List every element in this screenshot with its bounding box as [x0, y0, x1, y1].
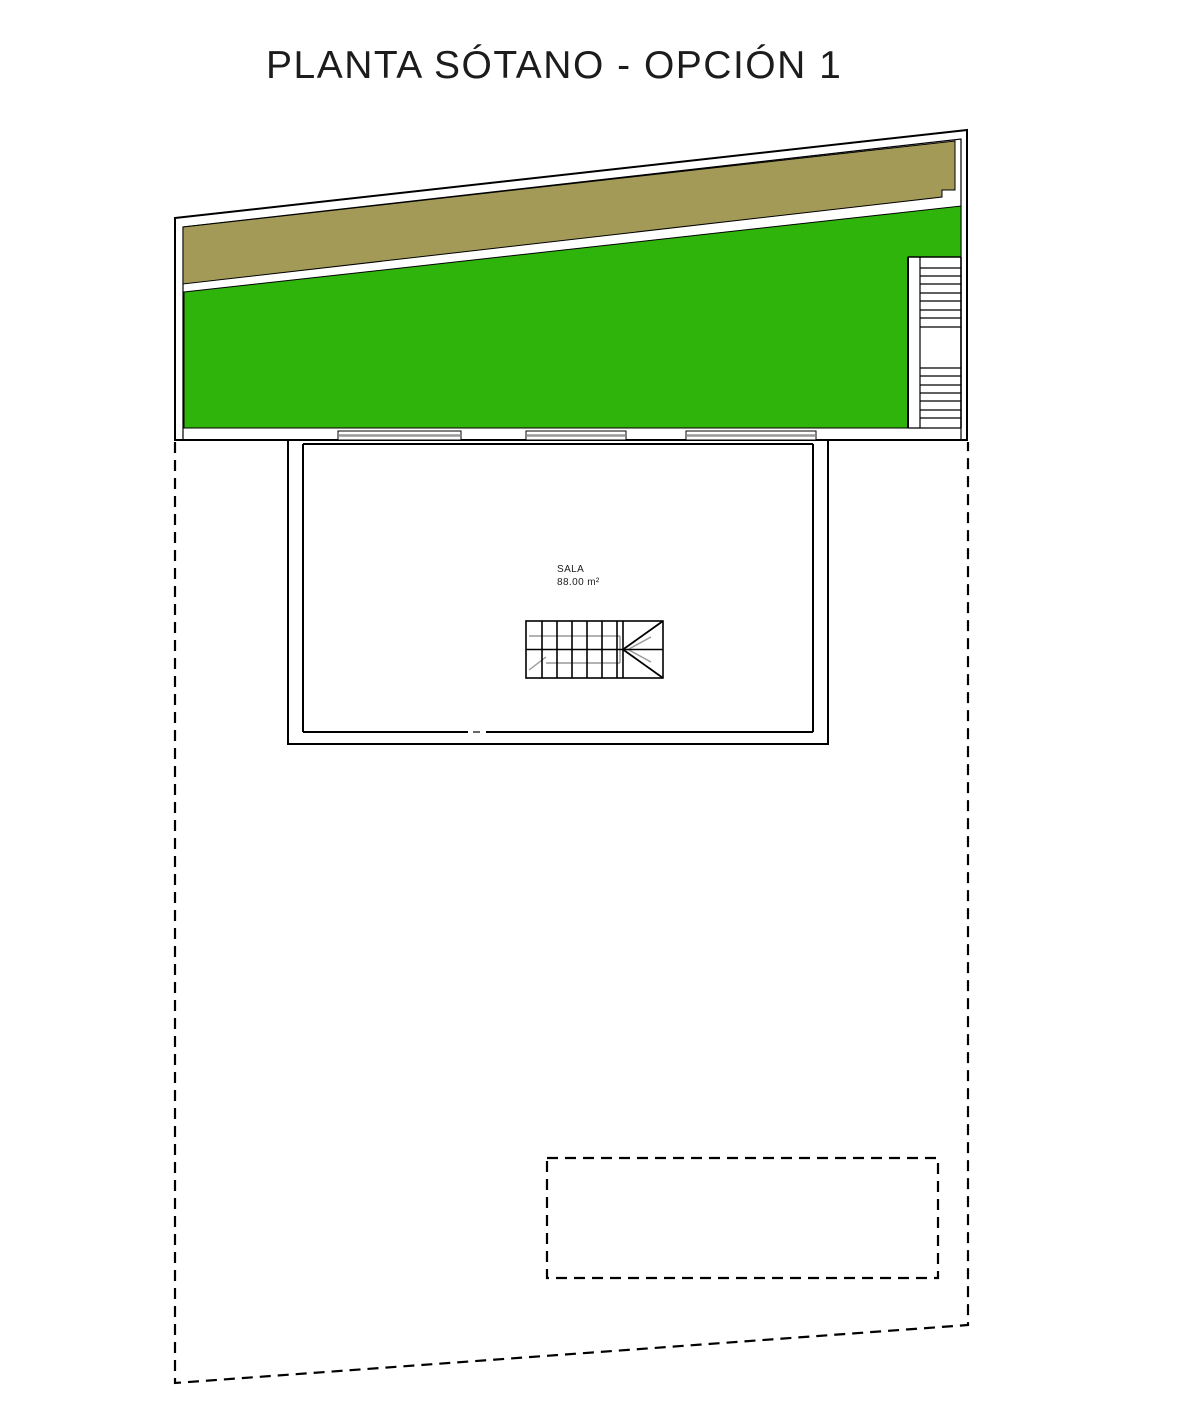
sala-room: SALA 88.00 m²	[288, 431, 828, 744]
sala-windows	[338, 431, 816, 440]
window-2	[526, 431, 626, 440]
stair-treads-lower	[920, 368, 961, 418]
floor-plan-drawing: SALA 88.00 m²	[0, 0, 1178, 1428]
window-3	[686, 431, 816, 440]
sala-outer-wall	[288, 440, 828, 744]
pool-outline	[547, 1158, 938, 1278]
upper-terrain-section	[175, 130, 967, 440]
window-1	[338, 431, 461, 440]
room-name-label: SALA	[557, 564, 584, 575]
room-area-label: 88.00 m²	[557, 577, 600, 588]
floor-plan-sheet: PLANTA SÓTANO - OPCIÓN 1	[0, 0, 1178, 1428]
